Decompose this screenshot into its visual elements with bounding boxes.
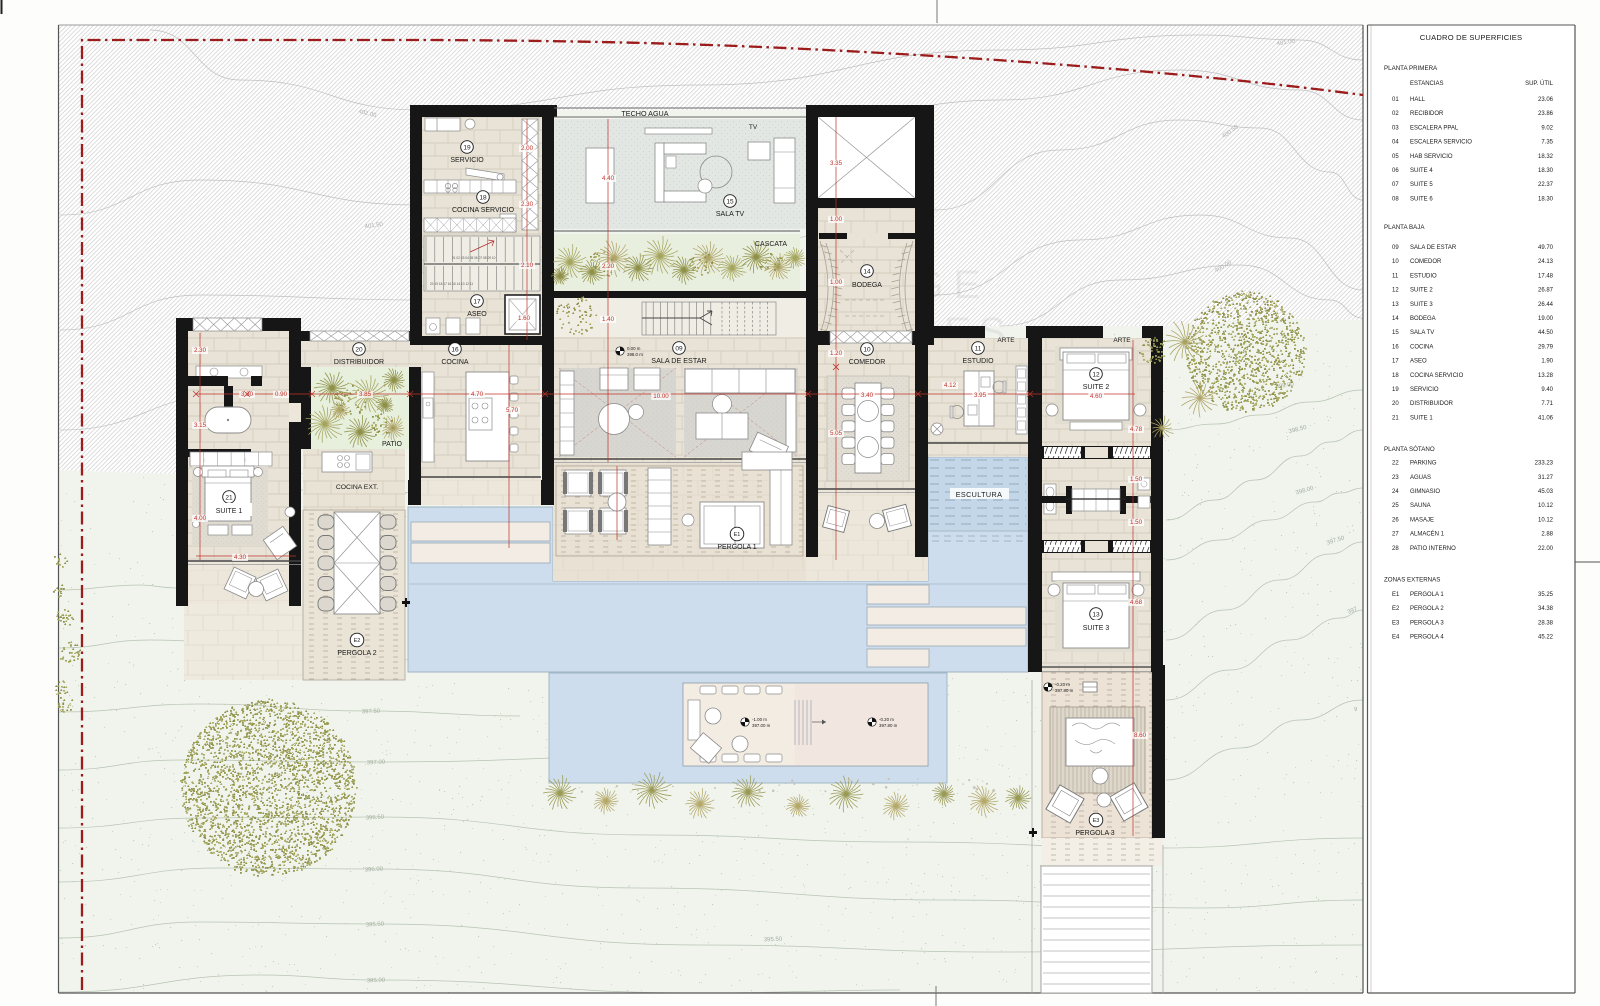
svg-text:ALMACÉN 1: ALMACÉN 1: [1410, 531, 1445, 538]
svg-text:04: 04: [1392, 140, 1399, 146]
svg-text:10.12: 10.12: [1538, 503, 1554, 509]
svg-text:PLANTA BAJA: PLANTA BAJA: [1384, 224, 1425, 231]
svg-text:10.00: 10.00: [653, 393, 669, 400]
svg-text:20: 20: [355, 346, 363, 353]
svg-text:395.00: 395.00: [367, 978, 386, 985]
svg-text:PATIO INTERNO: PATIO INTERNO: [1410, 546, 1456, 552]
svg-text:45.03: 45.03: [1538, 489, 1554, 495]
svg-text:22: 22: [1392, 461, 1399, 467]
svg-text:2.00: 2.00: [521, 145, 534, 152]
svg-text:COMEDOR: COMEDOR: [1410, 259, 1442, 265]
svg-text:ESCALERA SERVICIO: ESCALERA SERVICIO: [1410, 140, 1472, 146]
svg-text:PLANTA SÓTANO: PLANTA SÓTANO: [1384, 446, 1435, 453]
svg-text:MASAJE: MASAJE: [1410, 517, 1434, 523]
svg-text:E4: E4: [1392, 635, 1400, 641]
svg-text:44.50: 44.50: [1538, 330, 1554, 336]
svg-text:397.80 m: 397.80 m: [879, 723, 898, 728]
svg-text:4.30: 4.30: [234, 554, 247, 561]
svg-text:1.50: 1.50: [1130, 519, 1143, 526]
svg-text:3.85: 3.85: [359, 391, 372, 398]
svg-text:E2: E2: [354, 638, 361, 644]
svg-text:22.37: 22.37: [1538, 182, 1554, 188]
svg-text:02: 02: [1392, 111, 1399, 117]
svg-text:28.38: 28.38: [1538, 620, 1554, 626]
svg-text:-0.20 m: -0.20 m: [879, 717, 894, 722]
svg-text:SUP. ÚTIL: SUP. ÚTIL: [1525, 80, 1554, 87]
svg-text:COCINA SERVICIO: COCINA SERVICIO: [452, 207, 515, 214]
svg-text:PERGOLA 4: PERGOLA 4: [1410, 635, 1444, 641]
svg-text:1.50: 1.50: [1130, 476, 1143, 483]
svg-text:PATIO: PATIO: [382, 441, 403, 448]
svg-text:23.06: 23.06: [1538, 97, 1554, 103]
svg-text:3.95: 3.95: [974, 392, 987, 399]
svg-text:01: 01: [1392, 97, 1399, 103]
svg-text:45.22: 45.22: [1538, 635, 1554, 641]
svg-text:BODEGA: BODEGA: [1410, 316, 1436, 322]
svg-text:SUITE 1: SUITE 1: [216, 508, 243, 515]
svg-text:1.20: 1.20: [830, 350, 843, 357]
svg-text:2.30: 2.30: [521, 201, 534, 208]
svg-text:41.06: 41.06: [1538, 415, 1554, 421]
svg-text:E1: E1: [1392, 592, 1400, 598]
svg-text:397.00: 397.00: [367, 760, 386, 767]
svg-text:13: 13: [1092, 611, 1100, 618]
svg-text:4.78: 4.78: [1130, 426, 1143, 433]
svg-text:SALA DE ESTAR: SALA DE ESTAR: [651, 356, 706, 365]
svg-text:14: 14: [1392, 316, 1399, 322]
svg-text:13: 13: [1392, 302, 1399, 308]
svg-text:17: 17: [473, 298, 481, 305]
svg-text:SUITE 2: SUITE 2: [1083, 384, 1110, 391]
svg-text:E1: E1: [734, 532, 741, 538]
svg-text:7.71: 7.71: [1541, 401, 1553, 407]
svg-text:397.80 m: 397.80 m: [1055, 688, 1074, 693]
svg-text:SUITE 6: SUITE 6: [1410, 196, 1433, 202]
svg-text:25: 25: [1392, 503, 1399, 509]
svg-text:26: 26: [1392, 517, 1399, 523]
svg-text:COMEDOR: COMEDOR: [849, 359, 886, 366]
svg-text:ASEO: ASEO: [467, 311, 487, 318]
svg-text:8.60: 8.60: [1134, 732, 1147, 739]
svg-text:14: 14: [863, 268, 871, 275]
svg-text:SUITE 2: SUITE 2: [1410, 288, 1433, 294]
svg-text:DISTRIBUIDOR: DISTRIBUIDOR: [334, 359, 384, 366]
svg-text:SUITE 3: SUITE 3: [1410, 302, 1433, 308]
svg-text:10: 10: [1392, 259, 1399, 265]
svg-text:29.79: 29.79: [1538, 344, 1554, 350]
svg-text:4.70: 4.70: [471, 391, 484, 398]
svg-text:11: 11: [975, 345, 982, 352]
svg-text:HALL: HALL: [1410, 97, 1426, 103]
svg-text:05: 05: [1392, 154, 1399, 160]
svg-text:4.68: 4.68: [1130, 599, 1143, 606]
svg-text:27: 27: [1392, 532, 1399, 538]
svg-text:ESTUDIO: ESTUDIO: [962, 358, 994, 365]
svg-text:ESTUDIO: ESTUDIO: [1410, 273, 1437, 279]
svg-text:16: 16: [1392, 344, 1399, 350]
svg-text:20: 20: [1392, 401, 1399, 407]
svg-text:SAUNA: SAUNA: [1410, 503, 1431, 509]
svg-text:23.86: 23.86: [1538, 111, 1554, 117]
svg-text:10.12: 10.12: [1538, 517, 1554, 523]
svg-text:35.25: 35.25: [1538, 592, 1554, 598]
svg-text:PERGOLA 1: PERGOLA 1: [1410, 592, 1444, 598]
svg-text:15: 15: [726, 198, 734, 205]
svg-text:17.48: 17.48: [1538, 273, 1554, 279]
svg-text:PARKING: PARKING: [1410, 461, 1437, 467]
svg-text:18.32: 18.32: [1538, 154, 1554, 160]
svg-text:ESTANCIAS: ESTANCIAS: [1410, 81, 1444, 87]
svg-text:398.0 m: 398.0 m: [627, 352, 643, 357]
svg-text:SALA TV: SALA TV: [1410, 330, 1434, 336]
svg-text:CUADRO DE SUPERFICIES: CUADRO DE SUPERFICIES: [1420, 33, 1523, 42]
svg-text:2.88: 2.88: [1541, 532, 1553, 538]
svg-text:E3: E3: [1093, 818, 1100, 824]
svg-text:11: 11: [1392, 273, 1399, 279]
svg-text:COCINA: COCINA: [441, 359, 469, 366]
svg-text:COCINA EXT.: COCINA EXT.: [336, 484, 378, 491]
svg-text:17: 17: [1392, 359, 1399, 365]
svg-text:ESCULTURA: ESCULTURA: [956, 490, 1003, 499]
svg-text:-0.20 m: -0.20 m: [1055, 682, 1070, 687]
svg-text:12: 12: [1092, 371, 1100, 378]
svg-text:ARTE: ARTE: [997, 337, 1015, 344]
svg-text:31.27: 31.27: [1538, 475, 1554, 481]
svg-text:1.00: 1.00: [830, 216, 843, 223]
svg-text:4.40: 4.40: [602, 175, 615, 182]
svg-text:23: 23: [1392, 475, 1399, 481]
svg-text:24: 24: [1392, 489, 1399, 495]
svg-text:3.15: 3.15: [194, 422, 207, 429]
svg-text:07: 07: [1392, 182, 1399, 188]
svg-text:12: 12: [1392, 288, 1399, 294]
svg-text:COCINA SERVICIO: COCINA SERVICIO: [1410, 373, 1464, 379]
svg-text:18.30: 18.30: [1538, 168, 1554, 174]
svg-text:PERGOLA 1: PERGOLA 1: [717, 544, 756, 551]
svg-text:395.50: 395.50: [764, 937, 783, 944]
svg-text:19: 19: [1392, 387, 1399, 393]
svg-text:-1.00 m: -1.00 m: [752, 717, 767, 722]
svg-text:1.00: 1.00: [830, 279, 843, 286]
svg-text:3.40: 3.40: [861, 392, 874, 399]
svg-text:397.00 m: 397.00 m: [752, 723, 771, 728]
svg-text:PERGOLA 3: PERGOLA 3: [1075, 830, 1114, 837]
svg-text:01 02 03 04 05 06 07 08 09 10: 01 02 03 04 05 06 07 08 09 10: [452, 256, 496, 260]
svg-text:E2: E2: [1392, 606, 1400, 612]
svg-text:19.00: 19.00: [1538, 316, 1554, 322]
svg-text:SERVICIO: SERVICIO: [450, 157, 484, 164]
svg-text:E3: E3: [1392, 620, 1400, 626]
svg-text:15: 15: [1392, 330, 1399, 336]
svg-text:19: 19: [463, 144, 471, 151]
svg-text:9.02: 9.02: [1541, 125, 1553, 131]
svg-text:ESCALERA PPAL: ESCALERA PPAL: [1410, 125, 1459, 131]
svg-text:49.70: 49.70: [1538, 245, 1554, 251]
svg-text:SERVICIO: SERVICIO: [1410, 387, 1439, 393]
svg-text:0.90: 0.90: [275, 391, 288, 398]
svg-text:26.87: 26.87: [1538, 288, 1554, 294]
svg-text:22.00: 22.00: [1538, 546, 1554, 552]
svg-text:1.40: 1.40: [602, 316, 615, 323]
svg-text:9.40: 9.40: [1541, 387, 1553, 393]
svg-text:0.00 m: 0.00 m: [627, 346, 641, 351]
svg-text:20 19 18 17 16 15 14 13 12 11: 20 19 18 17 16 15 14 13 12 11: [430, 282, 473, 286]
svg-text:5.05: 5.05: [830, 430, 843, 437]
svg-text:4.00: 4.00: [194, 515, 207, 522]
svg-text:2.30: 2.30: [194, 347, 207, 354]
svg-text:13.28: 13.28: [1538, 373, 1554, 379]
svg-text:ARTE: ARTE: [1113, 337, 1131, 344]
svg-text:PERGOLA 3: PERGOLA 3: [1410, 620, 1444, 626]
svg-text:TV: TV: [749, 124, 758, 131]
svg-text:16: 16: [451, 346, 459, 353]
svg-text:4.12: 4.12: [944, 382, 957, 389]
svg-text:09: 09: [675, 345, 683, 352]
svg-text:21: 21: [1392, 415, 1399, 421]
svg-text:28: 28: [1392, 546, 1399, 552]
svg-text:DISTRIBUIDOR: DISTRIBUIDOR: [1410, 401, 1454, 407]
svg-text:34.38: 34.38: [1538, 606, 1554, 612]
svg-text:06: 06: [1392, 168, 1399, 174]
svg-text:PLANTA PRIMERA: PLANTA PRIMERA: [1384, 65, 1438, 72]
svg-text:4.60: 4.60: [1090, 393, 1103, 400]
svg-text:SALA DE ESTAR: SALA DE ESTAR: [1410, 245, 1457, 251]
svg-text:ASEO: ASEO: [1410, 359, 1427, 365]
svg-text:GIMNASIO: GIMNASIO: [1410, 489, 1440, 495]
svg-text:COCINA: COCINA: [1410, 344, 1433, 350]
svg-text:SUITE 3: SUITE 3: [1083, 625, 1110, 632]
svg-text:7.35: 7.35: [1541, 140, 1553, 146]
svg-text:21: 21: [225, 494, 233, 501]
svg-text:SUITE 1: SUITE 1: [1410, 415, 1433, 421]
svg-text:CASCATA: CASCATA: [755, 241, 787, 248]
svg-text:ZONAS EXTERNAS: ZONAS EXTERNAS: [1384, 577, 1440, 584]
svg-text:08: 08: [1392, 196, 1399, 202]
svg-text:HAB SERVICIO: HAB SERVICIO: [1410, 154, 1453, 160]
svg-text:PERGOLA 2: PERGOLA 2: [337, 650, 376, 657]
svg-text:233.23: 233.23: [1535, 461, 1554, 467]
svg-text:10: 10: [863, 346, 871, 353]
svg-text:1.60: 1.60: [518, 315, 531, 322]
svg-text:03: 03: [1392, 125, 1399, 131]
svg-text:SALA TV: SALA TV: [716, 211, 745, 218]
svg-text:SUITE 5: SUITE 5: [1410, 182, 1433, 188]
svg-text:18.30: 18.30: [1538, 196, 1554, 202]
svg-text:397.50: 397.50: [362, 709, 381, 716]
svg-text:26.44: 26.44: [1538, 302, 1554, 308]
svg-text:AGUAS: AGUAS: [1410, 475, 1431, 481]
svg-text:18: 18: [479, 194, 487, 201]
svg-text:2.10: 2.10: [521, 262, 534, 269]
svg-text:SUITE 4: SUITE 4: [1410, 168, 1433, 174]
svg-text:RECIBIDOR: RECIBIDOR: [1410, 111, 1444, 117]
svg-text:PERGOLA 2: PERGOLA 2: [1410, 606, 1444, 612]
svg-text:5.70: 5.70: [506, 407, 519, 414]
svg-text:3.35: 3.35: [830, 160, 843, 167]
svg-text:1.90: 1.90: [1541, 359, 1553, 365]
svg-text:BODEGA: BODEGA: [852, 282, 882, 289]
svg-text:09: 09: [1392, 245, 1399, 251]
svg-text:TECHO AGUA: TECHO AGUA: [621, 109, 668, 118]
svg-text:18: 18: [1392, 373, 1399, 379]
svg-text:24.13: 24.13: [1538, 259, 1554, 265]
svg-text:2.20: 2.20: [602, 263, 615, 270]
